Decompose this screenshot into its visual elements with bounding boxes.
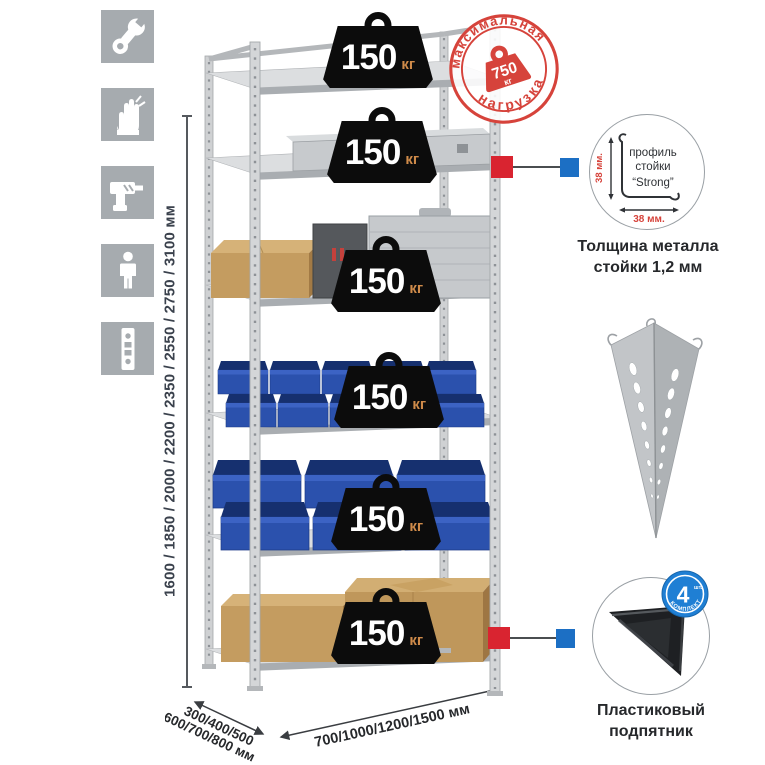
connector-blue-square-top: [560, 158, 579, 177]
person-icon: [101, 244, 154, 297]
upright-angle-profile: [597, 303, 707, 551]
weight-body: 150 кг: [330, 250, 442, 312]
height-dimension-label: 1600 / 1850 / 2000 / 2200 / 2350 / 2550 …: [162, 205, 179, 597]
connector-line-top: [512, 166, 561, 168]
profile-detail-circle: 38 мм. 38 мм. профиль стойки “Strong”: [589, 114, 705, 230]
profile-label-1: профиль: [629, 147, 677, 159]
shelf-capacity-badge: 150 кг: [330, 236, 442, 312]
gloves-icon: [101, 88, 154, 141]
height-dimension-line: [186, 115, 188, 688]
weight-body: 150 кг: [322, 26, 434, 88]
product-infographic: 1600 / 1850 / 2000 / 2200 / 2350 / 2550 …: [0, 0, 765, 765]
upright-strip-icon: [101, 322, 154, 375]
profile-caption-line2: стойки 1,2 мм: [570, 258, 726, 279]
weight-body: 150 кг: [333, 366, 445, 428]
capacity-value: 150: [345, 135, 400, 170]
foot-caption: Пластиковый подпятник: [575, 701, 727, 743]
wrench-icon-svg: [102, 11, 154, 63]
shelf-capacity-badge: 150 кг: [326, 107, 438, 183]
profile-vertical-dim: 38 мм.: [594, 153, 605, 183]
capacity-unit: кг: [409, 280, 423, 297]
shelf-capacity-badge: 150 кг: [333, 352, 445, 428]
capacity-unit: кг: [405, 151, 419, 168]
weight-body: 150 кг: [330, 602, 442, 664]
profile-caption-line1: Толщина металла: [570, 237, 726, 258]
connector-line-bottom: [509, 637, 557, 639]
profile-caption: Толщина металла стойки 1,2 мм: [570, 237, 726, 279]
profile-sketch-svg: 38 мм. 38 мм. профиль стойки “Strong”: [590, 115, 703, 228]
capacity-value: 150: [349, 502, 404, 537]
person-icon-svg: [102, 245, 154, 297]
connector-red-square-bottom: [488, 627, 510, 649]
shelf-capacity-badge: 150 кг: [322, 12, 434, 88]
capacity-unit: кг: [401, 56, 415, 73]
profile-horizontal-dim: 38 мм.: [633, 214, 665, 225]
cardboard-box-small: [211, 240, 322, 298]
capacity-unit: кг: [409, 518, 423, 535]
weight-body: 150 кг: [330, 488, 442, 550]
profile-label-2: стойки: [635, 161, 670, 173]
foot-quantity-badge: 4 шт. в комплекте: [660, 569, 710, 619]
capacity-value: 150: [352, 380, 407, 415]
wrench-icon: [101, 10, 154, 63]
profile-label-3: “Strong”: [632, 177, 674, 189]
upright-strip-icon-svg: [102, 323, 154, 375]
connector-red-square-top: [491, 156, 513, 178]
capacity-value: 150: [349, 616, 404, 651]
foot-caption-line1: Пластиковый: [575, 701, 727, 722]
drill-icon-svg: [102, 167, 154, 219]
drill-icon: [101, 166, 154, 219]
foot-caption-line2: подпятник: [575, 722, 727, 743]
foot-badge-value: 4: [677, 582, 690, 608]
shelf-capacity-badge: 150 кг: [330, 588, 442, 664]
connector-blue-square-bottom: [556, 629, 575, 648]
gloves-icon-svg: [102, 89, 154, 141]
capacity-value: 150: [341, 40, 396, 75]
weight-body: 150 кг: [326, 121, 438, 183]
capacity-value: 150: [349, 264, 404, 299]
capacity-unit: кг: [412, 396, 426, 413]
shelf-capacity-badge: 150 кг: [330, 474, 442, 550]
capacity-unit: кг: [409, 632, 423, 649]
foot-badge-unit: шт.: [694, 585, 703, 591]
